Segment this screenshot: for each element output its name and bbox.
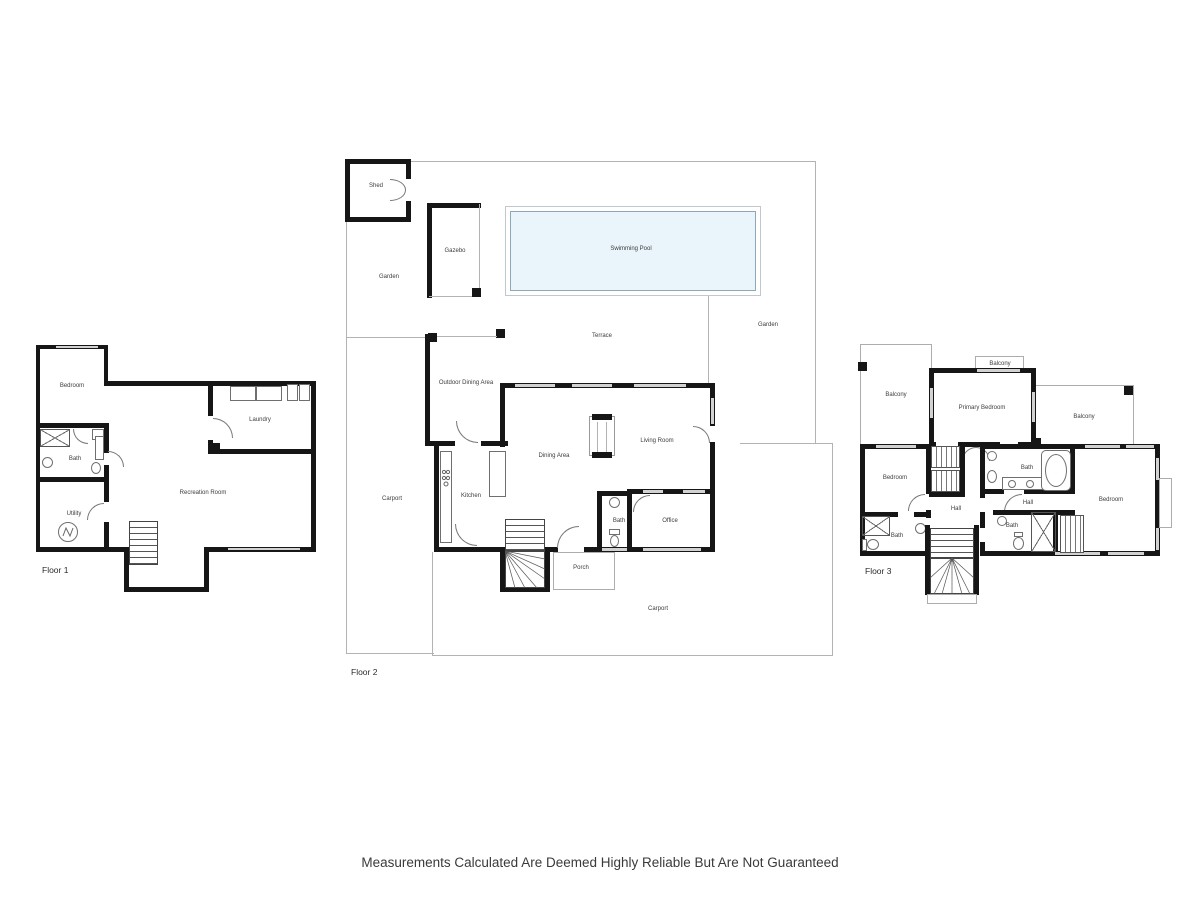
- door-opening: [898, 512, 914, 517]
- floor3-label: Floor 3: [865, 567, 891, 576]
- stair-landing: [927, 594, 977, 604]
- room-label-balcony-right: Balcony: [1073, 414, 1094, 420]
- closet-icon: [931, 446, 960, 468]
- closet-icon: [931, 470, 960, 492]
- wall: [974, 525, 979, 595]
- room-label-bedroom-left: Bedroom: [883, 475, 907, 481]
- floor3-plan: Balcony Balcony Primary Bedroom Balcony …: [0, 0, 1200, 900]
- room-label-balcony-left: Balcony: [885, 392, 906, 398]
- closet-icon: [1031, 512, 1056, 552]
- toilet-icon: [987, 470, 997, 483]
- room-label-hall-left: Hall: [951, 506, 961, 512]
- window: [1156, 458, 1159, 480]
- sink-icon: [1008, 480, 1016, 488]
- toilet-icon: [867, 539, 879, 550]
- post: [858, 362, 867, 371]
- disclaimer-text: Measurements Calculated Are Deemed Highl…: [0, 855, 1200, 870]
- wall: [960, 442, 965, 497]
- closet-icon: [1060, 515, 1084, 553]
- window: [1085, 445, 1120, 448]
- sink-icon: [1026, 480, 1034, 488]
- room-label-balcony-top: Balcony: [989, 361, 1010, 367]
- sink-icon: [987, 451, 997, 461]
- window: [1032, 392, 1035, 422]
- wall: [929, 492, 965, 497]
- stairs-icon: [930, 528, 974, 558]
- window: [876, 445, 916, 448]
- window: [1156, 528, 1159, 550]
- door-opening: [980, 498, 985, 512]
- floorplan-page: Bedroom Laundry Bath Recreation Room Uti…: [0, 0, 1200, 900]
- room-label-bedroom-right: Bedroom: [1099, 497, 1123, 503]
- wall: [860, 551, 931, 556]
- room-label-bath-mid: Bath: [1021, 465, 1033, 471]
- door-arc-icon: [908, 494, 925, 511]
- closet-icon: [862, 516, 890, 536]
- window: [1108, 552, 1144, 555]
- window: [977, 369, 1020, 372]
- bay-window: [1159, 478, 1172, 528]
- bathtub-icon: [1045, 454, 1067, 487]
- toilet-icon: [1013, 537, 1024, 550]
- room-label-bath-left: Bath: [891, 533, 903, 539]
- room-label-bath-bottom: Bath: [1006, 523, 1018, 529]
- window: [930, 388, 933, 418]
- window: [1126, 445, 1154, 448]
- room-label-hall-right: Hall: [1023, 500, 1033, 506]
- stairs-icon: [930, 558, 974, 594]
- room-label-primary-bedroom: Primary Bedroom: [959, 405, 1006, 411]
- door-opening: [980, 528, 985, 542]
- post: [1124, 386, 1133, 395]
